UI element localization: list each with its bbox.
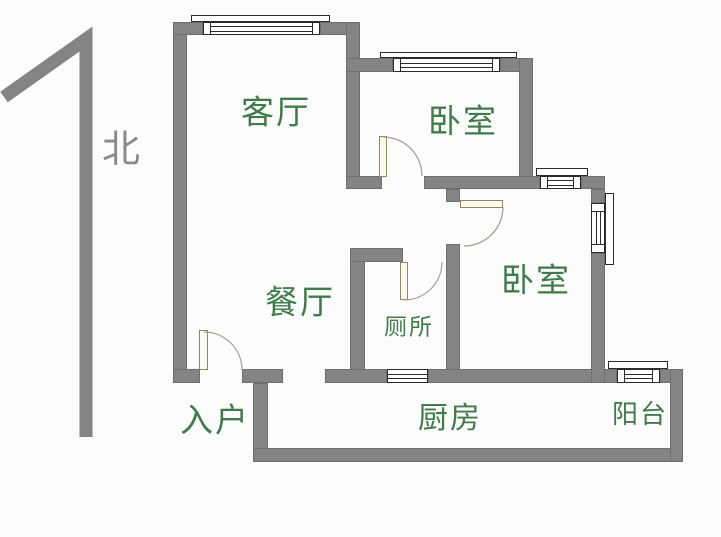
window-balcony-sill xyxy=(608,361,668,369)
wall-segment xyxy=(173,369,200,383)
window-living-top-post xyxy=(312,22,320,35)
room-label-kitchen: 厨房 xyxy=(418,404,482,434)
door-leaf-bedroom-top xyxy=(379,136,387,177)
wall-segment xyxy=(253,448,683,462)
window-bedroom-top-line xyxy=(394,63,499,64)
window-living-top xyxy=(203,22,320,35)
wall-segment xyxy=(346,176,382,189)
room-label-toilet: 厕所 xyxy=(384,317,434,340)
wall-segment xyxy=(591,253,605,383)
window-small-middle-post xyxy=(573,176,581,189)
door-leaf-toilet xyxy=(400,262,408,300)
wall-segment xyxy=(428,369,617,383)
window-balcony-post xyxy=(652,369,660,383)
wall-segment xyxy=(350,248,403,262)
wall-segment xyxy=(325,369,387,383)
wall-segment xyxy=(346,58,393,72)
north-arrow-icon xyxy=(4,39,86,437)
wall-segment xyxy=(446,244,460,383)
floor-plan: 客厅 卧室 卧室 餐厅 厕所 入户 厨房 阳台 北 xyxy=(0,0,721,537)
wall-segment xyxy=(242,369,283,383)
wall-segment xyxy=(173,22,187,383)
window-bedroom-right-post xyxy=(591,244,605,253)
wall-segment xyxy=(581,176,605,189)
door-leaf-entry xyxy=(199,330,208,370)
window-living-top-line xyxy=(204,26,319,27)
room-label-balcony: 阳台 xyxy=(612,402,668,428)
wall-segment xyxy=(670,369,683,462)
window-living-top-post xyxy=(203,22,211,35)
north-label: 北 xyxy=(102,130,140,168)
door-arc-toilet xyxy=(404,262,442,300)
wall-segment xyxy=(173,22,203,35)
window-bedroom-top-post xyxy=(393,58,401,72)
window-living-top-sill xyxy=(191,15,330,22)
room-label-entry: 入户 xyxy=(180,404,250,437)
wall-segment xyxy=(446,189,460,202)
window-bedroom-right-sill xyxy=(605,193,614,265)
wall-segment xyxy=(346,22,360,188)
door-arc-entry xyxy=(204,332,242,370)
room-label-bedroom-top: 卧室 xyxy=(428,105,498,138)
wall-segment xyxy=(424,176,540,189)
window-bedroom-top-line xyxy=(394,67,499,68)
window-small-middle-post xyxy=(540,176,548,189)
wall-segment xyxy=(350,248,365,383)
wall-segment xyxy=(519,58,533,189)
window-balcony-post xyxy=(617,369,625,383)
room-label-dining: 餐厅 xyxy=(265,286,335,319)
window-living-top-line xyxy=(204,31,319,32)
window-toilet-line xyxy=(388,374,427,375)
window-bedroom-right-post xyxy=(591,203,605,212)
room-label-bedroom-right: 卧室 xyxy=(501,264,571,297)
window-small-middle-sill xyxy=(536,168,588,176)
window-toilet-line xyxy=(388,378,427,379)
door-arc-bedroom-top xyxy=(383,137,422,176)
window-toilet xyxy=(387,369,428,383)
room-label-living: 客厅 xyxy=(241,96,311,129)
wall-segment xyxy=(591,189,605,203)
door-leaf-bedroom-right xyxy=(460,200,503,208)
window-bedroom-top xyxy=(393,58,500,72)
door-arc-bedroom-right xyxy=(464,207,503,246)
window-bedroom-top-post xyxy=(492,58,500,72)
